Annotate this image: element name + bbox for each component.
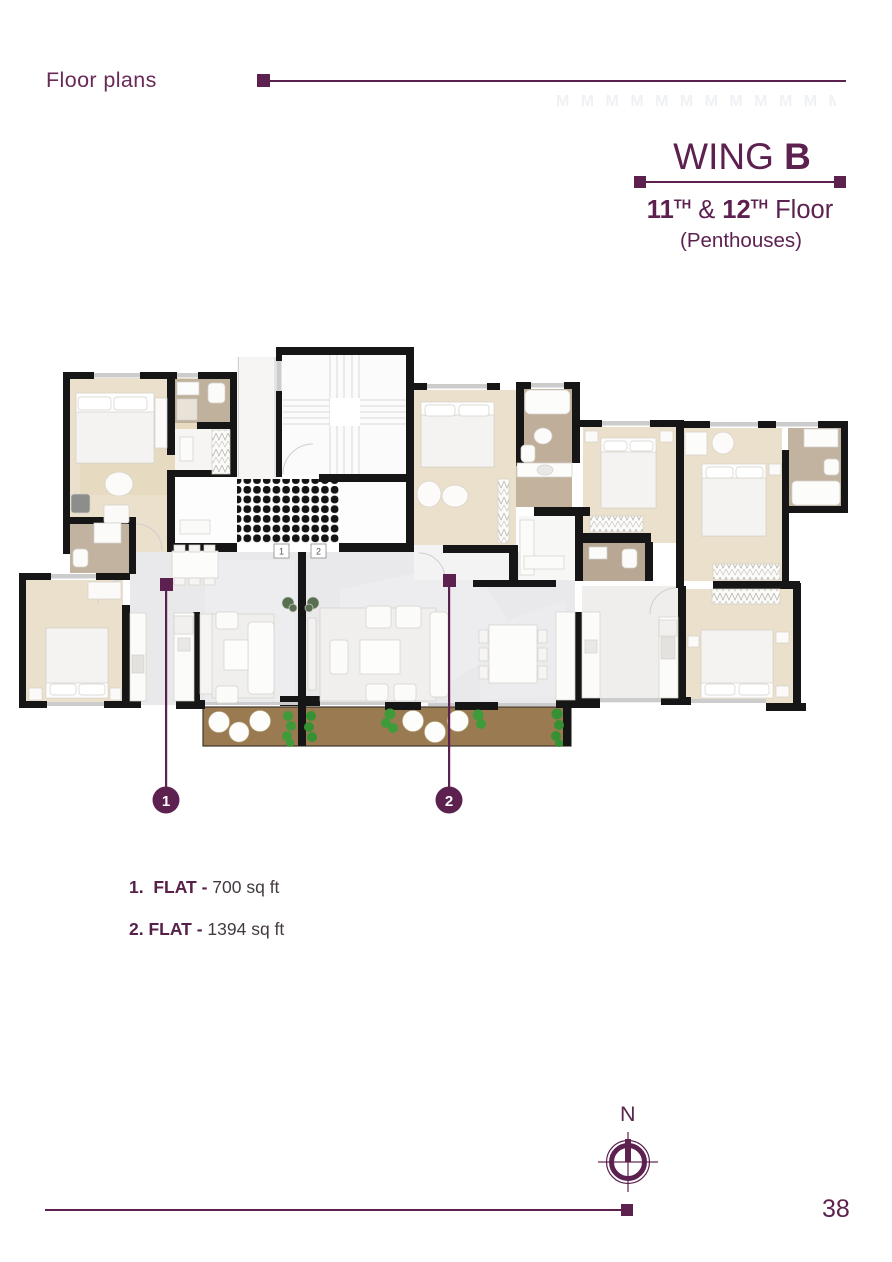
svg-text:2: 2 [316, 547, 321, 557]
svg-text:2: 2 [445, 793, 453, 810]
svg-text:1: 1 [279, 547, 284, 557]
svg-text:1: 1 [162, 793, 170, 810]
